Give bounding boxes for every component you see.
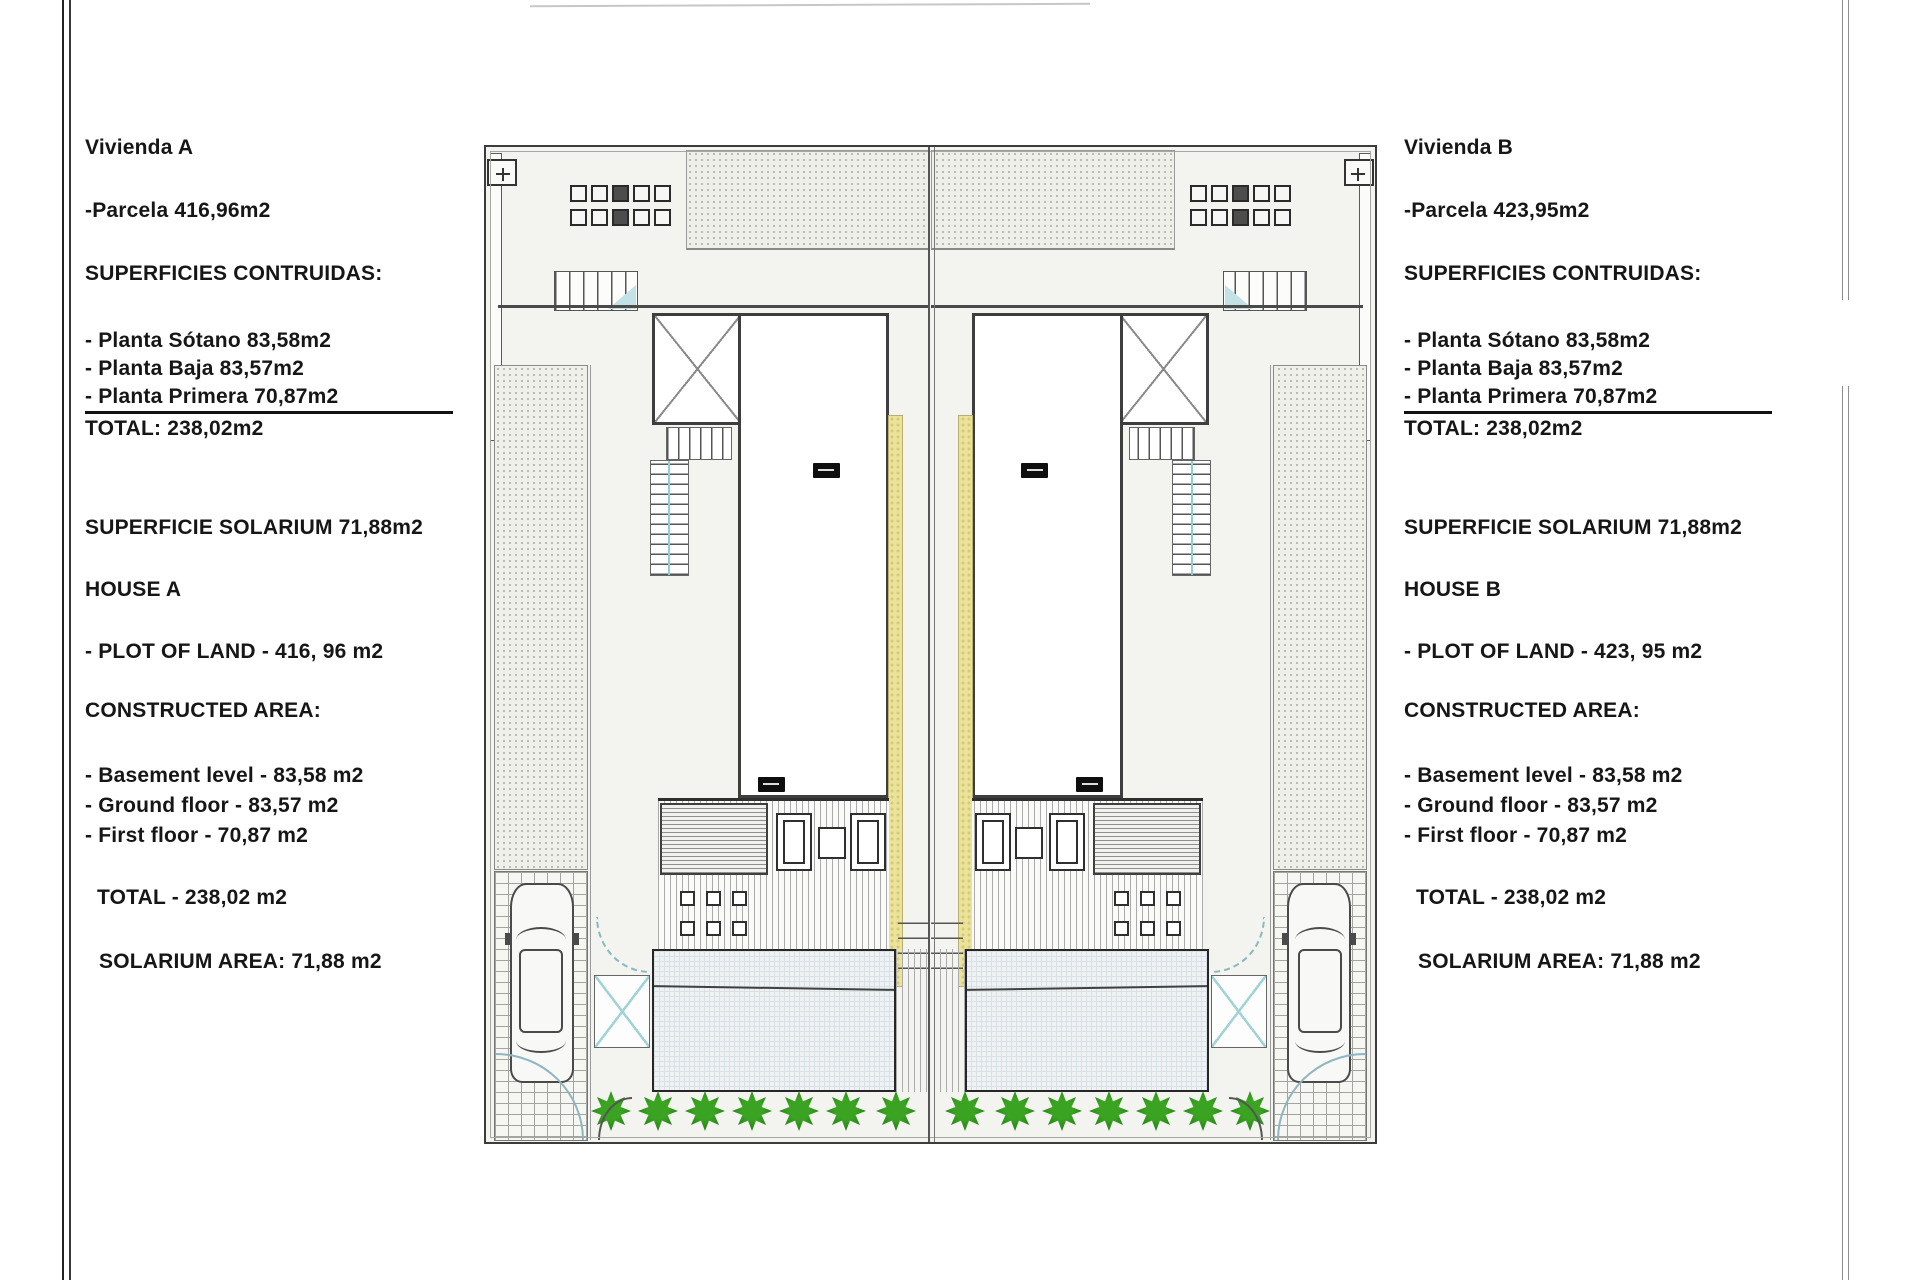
chair	[1274, 185, 1291, 202]
house-a-title: Vivienda A	[85, 136, 193, 160]
house-roof	[972, 313, 1123, 798]
party-wall	[928, 147, 935, 1142]
room-label-tag	[813, 463, 840, 478]
house-b-planta-sotano: - Planta Sótano 83,58m2	[1404, 329, 1650, 353]
bush-icon	[995, 1091, 1035, 1131]
house-b-planta-baja: - Planta Baja 83,57m2	[1404, 357, 1623, 381]
utility-meter-box-icon	[487, 159, 517, 186]
chair	[1253, 209, 1270, 226]
chair	[1274, 209, 1291, 226]
sofa-table	[818, 827, 846, 859]
swimming-pool	[652, 949, 896, 1092]
door-swing-dashed	[1211, 917, 1265, 973]
chair	[654, 209, 671, 226]
chair	[654, 185, 671, 202]
door-swing-dashed	[596, 917, 650, 973]
car-mirror	[573, 933, 579, 945]
party-wall-strip	[958, 415, 973, 987]
site-plan-drawing	[484, 145, 1377, 1144]
room-label-tag	[1021, 463, 1048, 478]
house-a-planta-sotano: - Planta Sótano 83,58m2	[85, 329, 331, 353]
house-b-superficies-heading: SUPERFICIES CONTRUIDAS:	[1404, 262, 1701, 286]
chair	[612, 209, 629, 226]
chair	[1232, 185, 1249, 202]
dining-chair	[1114, 921, 1129, 936]
house-b-parcela: -Parcela 423,95m2	[1404, 199, 1590, 223]
house-a-solarium: SUPERFICIE SOLARIUM 71,88m2	[85, 516, 423, 540]
chair	[1211, 209, 1228, 226]
dining-chair	[1140, 921, 1155, 936]
sheet-edge-line-right-upper	[1842, 0, 1849, 300]
bush-icon	[876, 1091, 916, 1131]
utility-meter-box-icon	[1344, 159, 1374, 186]
house-b-planta-primera: - Planta Primera 70,87m2	[1404, 385, 1772, 414]
dining-set	[1114, 891, 1181, 938]
plot-house-b	[931, 147, 1375, 1142]
house-a-first-floor: - First floor - 70,87 m2	[85, 824, 308, 848]
house-a-total: TOTAL: 238,02m2	[85, 417, 263, 441]
house-a-superficies-heading: SUPERFICIES CONTRUIDAS:	[85, 262, 382, 286]
entry-gate-glass	[1211, 975, 1267, 1048]
sofa-right	[975, 813, 1011, 871]
house-a-planta-baja: - Planta Baja 83,57m2	[85, 357, 304, 381]
sofa-right	[850, 813, 886, 871]
plan-sheet: Vivienda A -Parcela 416,96m2 SUPERFICIES…	[0, 0, 1920, 1280]
bush-icon	[826, 1091, 866, 1131]
bush-icon	[1089, 1091, 1129, 1131]
walkway-boundary-line	[1270, 365, 1271, 1140]
house-b-plot-of-land: - PLOT OF LAND - 423, 95 m2	[1404, 640, 1702, 664]
sheet-edge-line-left	[62, 0, 71, 1280]
dining-chair	[1140, 891, 1155, 906]
bush-icon	[638, 1091, 678, 1131]
house-a-info-panel: Vivienda A -Parcela 416,96m2 SUPERFICIES…	[85, 0, 505, 1280]
car-mirror	[1282, 933, 1288, 945]
dining-chair	[1166, 891, 1181, 906]
house-b-total-en: TOTAL - 238,02 m2	[1416, 886, 1606, 910]
bush-icon	[1136, 1091, 1176, 1131]
house-b-info-panel: Vivienda B -Parcela 423,95m2 SUPERFICIES…	[1404, 0, 1824, 1280]
car-roof	[519, 949, 563, 1033]
covered-terrace-deck	[972, 798, 1203, 949]
chair	[1253, 185, 1270, 202]
staircase-upper-run	[666, 427, 732, 460]
sheet-top-edge-line	[530, 3, 1090, 7]
plot-house-a	[486, 147, 930, 1142]
chair	[1232, 209, 1249, 226]
front-wall-line	[498, 305, 930, 308]
pool-water-line	[967, 985, 1207, 991]
void-skylight	[1118, 313, 1209, 425]
chair	[1190, 185, 1207, 202]
house-a-house-heading: HOUSE A	[85, 578, 181, 602]
chair	[1190, 209, 1207, 226]
house-b-title: Vivienda B	[1404, 136, 1513, 160]
dining-chair	[680, 921, 695, 936]
bush-icon	[779, 1091, 819, 1131]
staircase-upper-run	[1129, 427, 1195, 460]
bush-icon	[732, 1091, 772, 1131]
bush-icon	[1042, 1091, 1082, 1131]
dining-chair	[680, 891, 695, 906]
dining-chair	[706, 891, 721, 906]
car-mirror	[1350, 933, 1356, 945]
chair	[633, 185, 650, 202]
car-rear-window	[1295, 1029, 1345, 1053]
sofa-left	[776, 813, 812, 871]
walkway-boundary-line	[590, 365, 591, 1140]
void-skylight	[652, 313, 743, 425]
house-a-constructed-heading: CONSTRUCTED AREA:	[85, 699, 321, 723]
dining-set	[680, 891, 747, 938]
house-b-first-floor: - First floor - 70,87 m2	[1404, 824, 1627, 848]
house-a-ground-floor: - Ground floor - 83,57 m2	[85, 794, 339, 818]
dining-chair	[732, 891, 747, 906]
pergola-shade	[1093, 803, 1201, 875]
house-b-solarium: SUPERFICIE SOLARIUM 71,88m2	[1404, 516, 1742, 540]
sheet-edge-line-right-lower	[1842, 386, 1849, 1280]
chair	[591, 185, 608, 202]
car-mirror	[505, 933, 511, 945]
swimming-pool	[965, 949, 1209, 1092]
entry-gate-glass	[594, 975, 650, 1048]
chair	[591, 209, 608, 226]
covered-terrace-deck	[658, 798, 889, 949]
pool-water-line	[654, 985, 894, 991]
front-wall-line	[931, 305, 1363, 308]
car-icon	[510, 883, 574, 1083]
dining-chair	[706, 921, 721, 936]
terrace-label-tag	[1076, 777, 1103, 792]
house-b-house-heading: HOUSE B	[1404, 578, 1501, 602]
bush-icon	[1183, 1091, 1223, 1131]
staircase-main-flight	[1172, 460, 1211, 576]
house-b-solarium-en: SOLARIUM AREA: 71,88 m2	[1418, 950, 1701, 974]
house-a-total-en: TOTAL - 238,02 m2	[97, 886, 287, 910]
staircase-main-flight	[650, 460, 689, 576]
car-icon	[1287, 883, 1351, 1083]
side-garden-strip	[1273, 365, 1367, 870]
terrace-label-tag	[758, 777, 785, 792]
house-b-total: TOTAL: 238,02m2	[1404, 417, 1582, 441]
house-b-constructed-heading: CONSTRUCTED AREA:	[1404, 699, 1640, 723]
pool-side-decking	[896, 949, 930, 1092]
house-a-basement: - Basement level - 83,58 m2	[85, 764, 364, 788]
dining-chair	[1114, 891, 1129, 906]
chair	[570, 209, 587, 226]
house-a-solarium-en: SOLARIUM AREA: 71,88 m2	[99, 950, 382, 974]
chair	[633, 209, 650, 226]
dining-chair	[732, 921, 747, 936]
house-a-parcela: -Parcela 416,96m2	[85, 199, 271, 223]
house-b-ground-floor: - Ground floor - 83,57 m2	[1404, 794, 1658, 818]
house-b-basement: - Basement level - 83,58 m2	[1404, 764, 1683, 788]
pergola-shade	[660, 803, 768, 875]
bush-icon	[685, 1091, 725, 1131]
party-wall-strip	[888, 415, 903, 987]
car-rear-window	[516, 1029, 566, 1053]
car-roof	[1298, 949, 1342, 1033]
sofa-table	[1015, 827, 1043, 859]
side-garden-strip	[494, 365, 588, 870]
patio-chair-group	[1188, 185, 1291, 228]
patio-chair-group	[570, 185, 673, 228]
gravel-area-top	[931, 150, 1175, 250]
house-a-planta-primera: - Planta Primera 70,87m2	[85, 385, 453, 414]
house-roof	[738, 313, 889, 798]
gravel-area-top	[686, 150, 930, 250]
dining-chair	[1166, 921, 1181, 936]
pool-side-decking	[931, 949, 965, 1092]
chair	[570, 185, 587, 202]
chair	[612, 185, 629, 202]
house-a-plot-of-land: - PLOT OF LAND - 416, 96 m2	[85, 640, 383, 664]
chair	[1211, 185, 1228, 202]
sofa-left	[1049, 813, 1085, 871]
bush-icon	[945, 1091, 985, 1131]
